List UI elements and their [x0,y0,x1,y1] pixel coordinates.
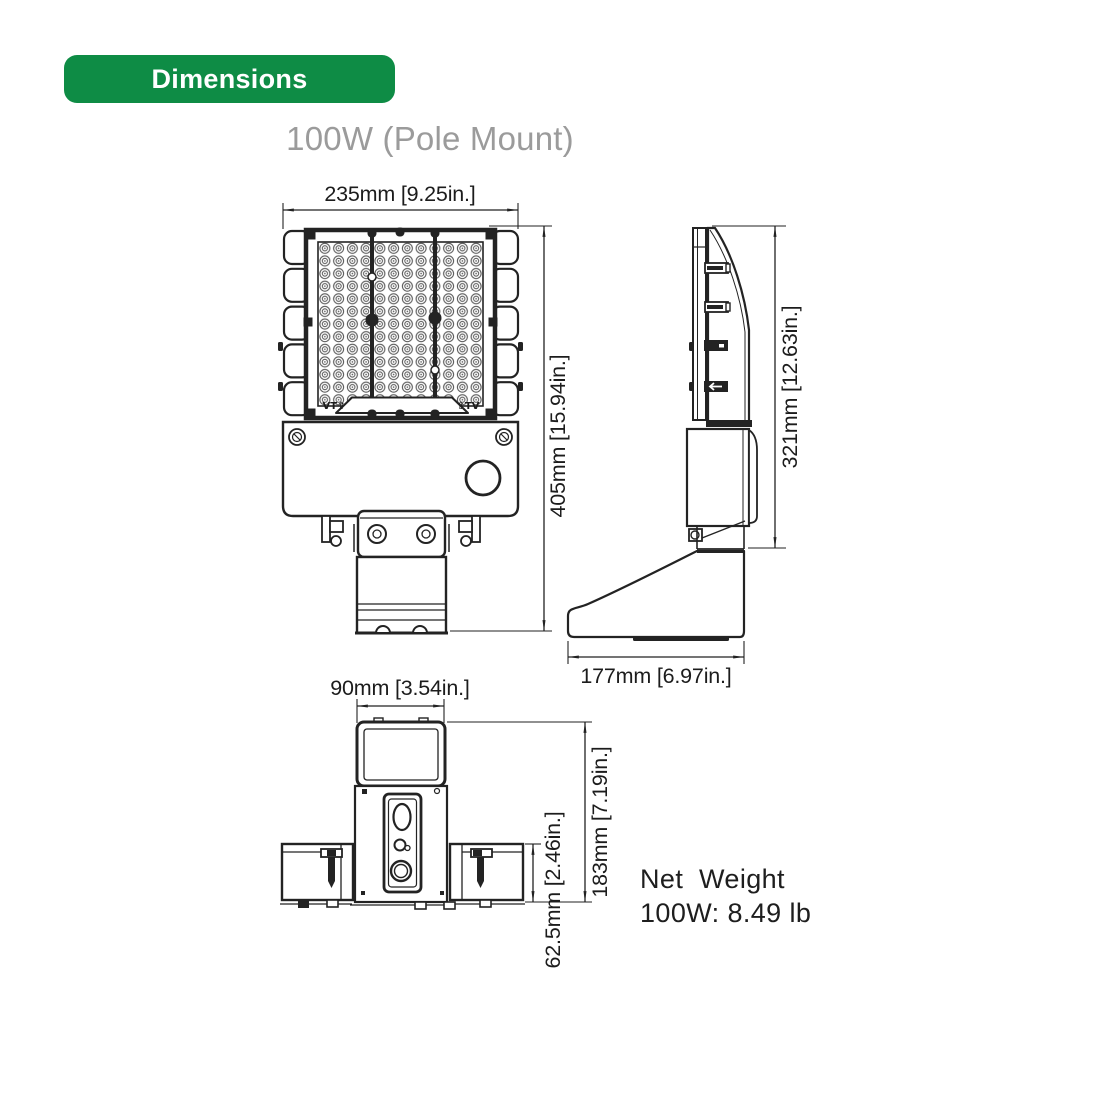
front-width-dimension: 235mm [9.25in.] [283,182,518,229]
bottom-width-dimension: 90mm [3.54in.] [330,676,469,723]
led-array [318,233,483,415]
front-head-housing: VT⇧ ⇧TV [278,228,523,419]
dimensions-badge: Dimensions [64,55,395,103]
bottom-wing-left [282,844,353,900]
spec-sheet-page: Dimensions 100W (Pole Mount) 235mm [9.25… [0,0,1100,1100]
side-head-profile [689,228,752,427]
bottom-view-drawing: 90mm [3.54in.] [265,675,615,970]
screw-top-right [496,429,512,445]
front-view-drawing: 235mm [9.25in.] [255,180,585,655]
front-width-dim-label: 235mm [9.25in.] [324,182,475,206]
bottom-width-dim-label: 90mm [3.54in.] [330,676,469,700]
net-weight-note: Net Weight 100W: 8.49 lb [640,862,811,930]
wiring-access-plate [384,794,421,892]
lens-marking-right: ⇧TV [457,401,480,412]
side-pole-base [568,551,744,641]
photocell-receptacle [466,461,500,495]
side-view-drawing: 321mm [12.63in.] 177mm [6.97in.] [555,175,820,705]
front-mount-bracket [322,511,480,557]
bracket-screw-left [368,525,386,543]
bottom-wing-right [450,844,523,900]
net-weight-title: Net Weight [640,862,811,896]
net-weight-value: 100W: 8.49 lb [640,896,811,930]
side-bracket [687,429,757,553]
bottom-housing-dimension: 62.5mm [2.46in.] [525,812,565,969]
screw-top-left [289,429,305,445]
page-title: 100W (Pole Mount) [250,120,610,158]
bracket-screw-right [417,525,435,543]
front-mount-arm [355,557,448,633]
front-driver-box [283,422,518,516]
side-height-dim-label: 321mm [12.63in.] [778,306,802,469]
dimensions-badge-label: Dimensions [151,64,307,95]
lens-marking-left: VT⇧ [323,401,346,412]
bottom-housing-dim-label: 62.5mm [2.46in.] [541,812,565,969]
bottom-depth-dim-label: 183mm [7.19in.] [588,746,612,897]
